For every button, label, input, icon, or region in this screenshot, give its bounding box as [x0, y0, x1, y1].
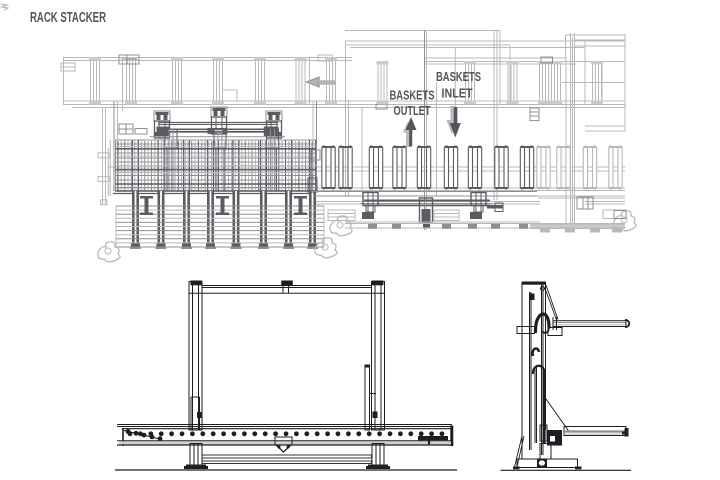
svg-text:RACK STACKER: RACK STACKER: [30, 10, 106, 26]
svg-text:INLET: INLET: [442, 87, 473, 101]
svg-text:OUTLET: OUTLET: [394, 104, 431, 118]
svg-text:BASKETS: BASKETS: [390, 89, 435, 103]
svg-text:BASKETS: BASKETS: [436, 70, 481, 84]
